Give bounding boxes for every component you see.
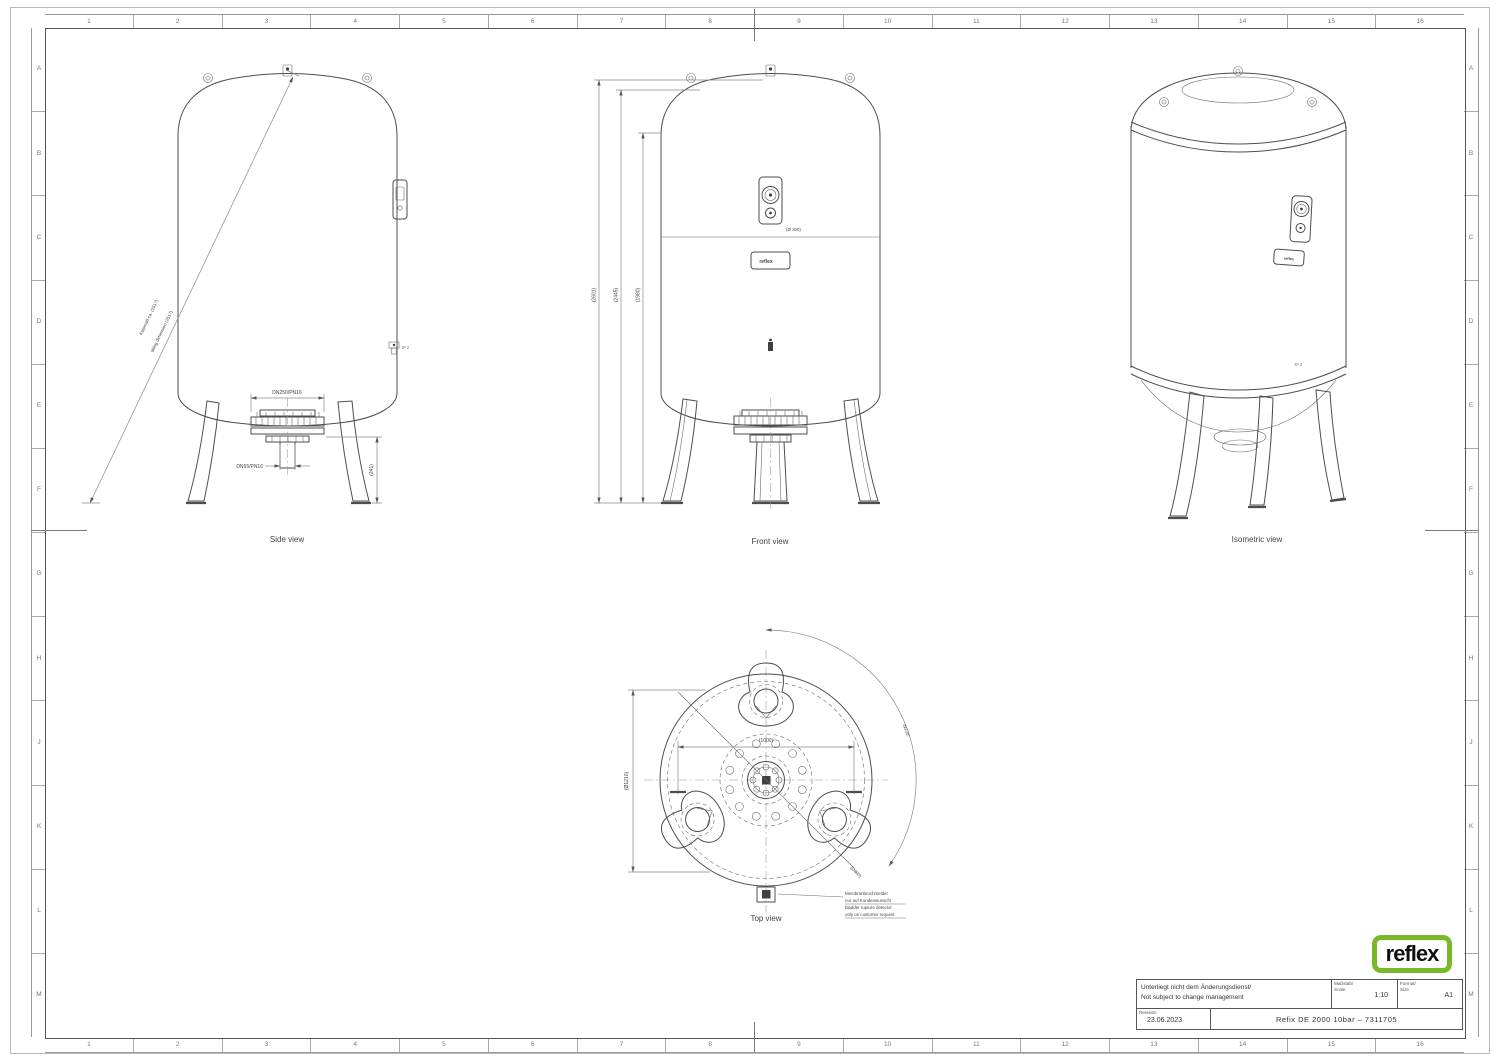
dim-label: (2445) bbox=[614, 287, 620, 302]
lifting-lug-icon bbox=[1160, 98, 1169, 107]
lifting-lug-icon bbox=[846, 74, 855, 83]
dim-label: (2601) bbox=[592, 287, 598, 302]
drain-port bbox=[768, 342, 773, 351]
change-note-en: Not subject to change management bbox=[1141, 993, 1327, 1003]
leg bbox=[1250, 396, 1273, 505]
revision-date: 23.06.2023 bbox=[1147, 1017, 1182, 1024]
scale-cell: Maßstab/ Scale 1:10 bbox=[1332, 980, 1398, 1008]
leg bbox=[1170, 392, 1204, 516]
dim-label: (1000) bbox=[759, 738, 774, 744]
fitting-plate bbox=[1290, 196, 1312, 243]
title-block: Unterliegt nicht dem Änderungsdienst/ No… bbox=[1136, 979, 1463, 1030]
note-text: nur auf Kundenwunsch/ bbox=[845, 898, 892, 903]
note-text: Membranbruchmelder bbox=[845, 891, 888, 896]
port-label: TP 2 bbox=[401, 346, 409, 350]
revision-cell: Revision 23.06.2023 bbox=[1137, 1009, 1211, 1029]
view-caption: Isometric view bbox=[1232, 535, 1283, 544]
leg bbox=[338, 401, 369, 501]
iso-view: reflex TP 2 Isometric view bbox=[1131, 67, 1346, 545]
drawing-title: Refix DE 2000 10bar – 7311705 bbox=[1211, 1009, 1462, 1029]
note-text: only on customer request bbox=[845, 912, 895, 917]
weld-band bbox=[1131, 122, 1346, 144]
scale-label-en: Scale bbox=[1334, 987, 1353, 993]
port-label: TP 2 bbox=[1294, 363, 1302, 367]
top-view: (1000) (Ø1210) (Ø860) 3x120° Membranbruc… bbox=[624, 630, 916, 923]
dim-label: (241) bbox=[369, 464, 375, 476]
front-view: (Ø 200) reflex bbox=[592, 65, 881, 546]
view-caption: Front view bbox=[752, 537, 789, 546]
leg bbox=[1316, 390, 1344, 500]
format-value: A1 bbox=[1444, 992, 1453, 999]
side-view: TP 2 DN250/PN16 DN65/PN16 bbox=[82, 65, 409, 544]
nameplate-text: reflex bbox=[759, 259, 773, 265]
change-note-cell: Unterliegt nicht dem Änderungsdienst/ No… bbox=[1137, 980, 1332, 1008]
dim-label: tilting dimension (2517) bbox=[150, 309, 174, 353]
leg-pad bbox=[799, 783, 881, 862]
lifting-lug-icon bbox=[363, 74, 372, 83]
leg-pad bbox=[651, 783, 733, 862]
format-label-en: Size bbox=[1400, 987, 1416, 993]
dim-label: (1980) bbox=[636, 287, 642, 302]
format-cell: Format/ Size A1 bbox=[1398, 980, 1462, 1008]
lifting-lug-icon bbox=[204, 74, 213, 83]
fitting-plate-profile bbox=[393, 180, 407, 219]
dim-label: (Ø 200) bbox=[786, 227, 801, 232]
lifting-lug-icon bbox=[1308, 98, 1317, 107]
drawing-sheet: 12345678910111213141516 1234567891011121… bbox=[0, 0, 1500, 1061]
vessel-outline bbox=[661, 74, 880, 426]
view-caption: Side view bbox=[270, 535, 304, 544]
revision-label: Revision bbox=[1139, 1010, 1157, 1016]
dim-label: (Ø860) bbox=[849, 865, 863, 879]
drawing-area: TP 2 DN250/PN16 DN65/PN16 bbox=[0, 0, 1500, 1061]
technical-drawing: TP 2 DN250/PN16 DN65/PN16 bbox=[0, 0, 1500, 1061]
dim-label: DN250/PN16 bbox=[272, 390, 302, 396]
reflex-logo: reflex bbox=[1372, 935, 1452, 973]
lifting-lug-icon bbox=[687, 74, 696, 83]
dim-label: Kippmaß ca. (2517) bbox=[138, 298, 159, 335]
nameplate-text: reflex bbox=[1284, 257, 1295, 262]
dim-label: DN65/PN16 bbox=[236, 464, 263, 470]
dim-label: (Ø1210) bbox=[624, 771, 630, 790]
note-text: bladder rupture detector bbox=[845, 905, 892, 910]
change-note-de: Unterliegt nicht dem Änderungsdienst/ bbox=[1141, 983, 1327, 993]
dim-label: 3x120° bbox=[902, 723, 911, 738]
lifting-lug-icon bbox=[1234, 67, 1243, 76]
scale-value: 1:10 bbox=[1374, 992, 1388, 999]
view-caption: Top view bbox=[750, 914, 781, 923]
reflex-logo-text: reflex bbox=[1386, 941, 1439, 967]
